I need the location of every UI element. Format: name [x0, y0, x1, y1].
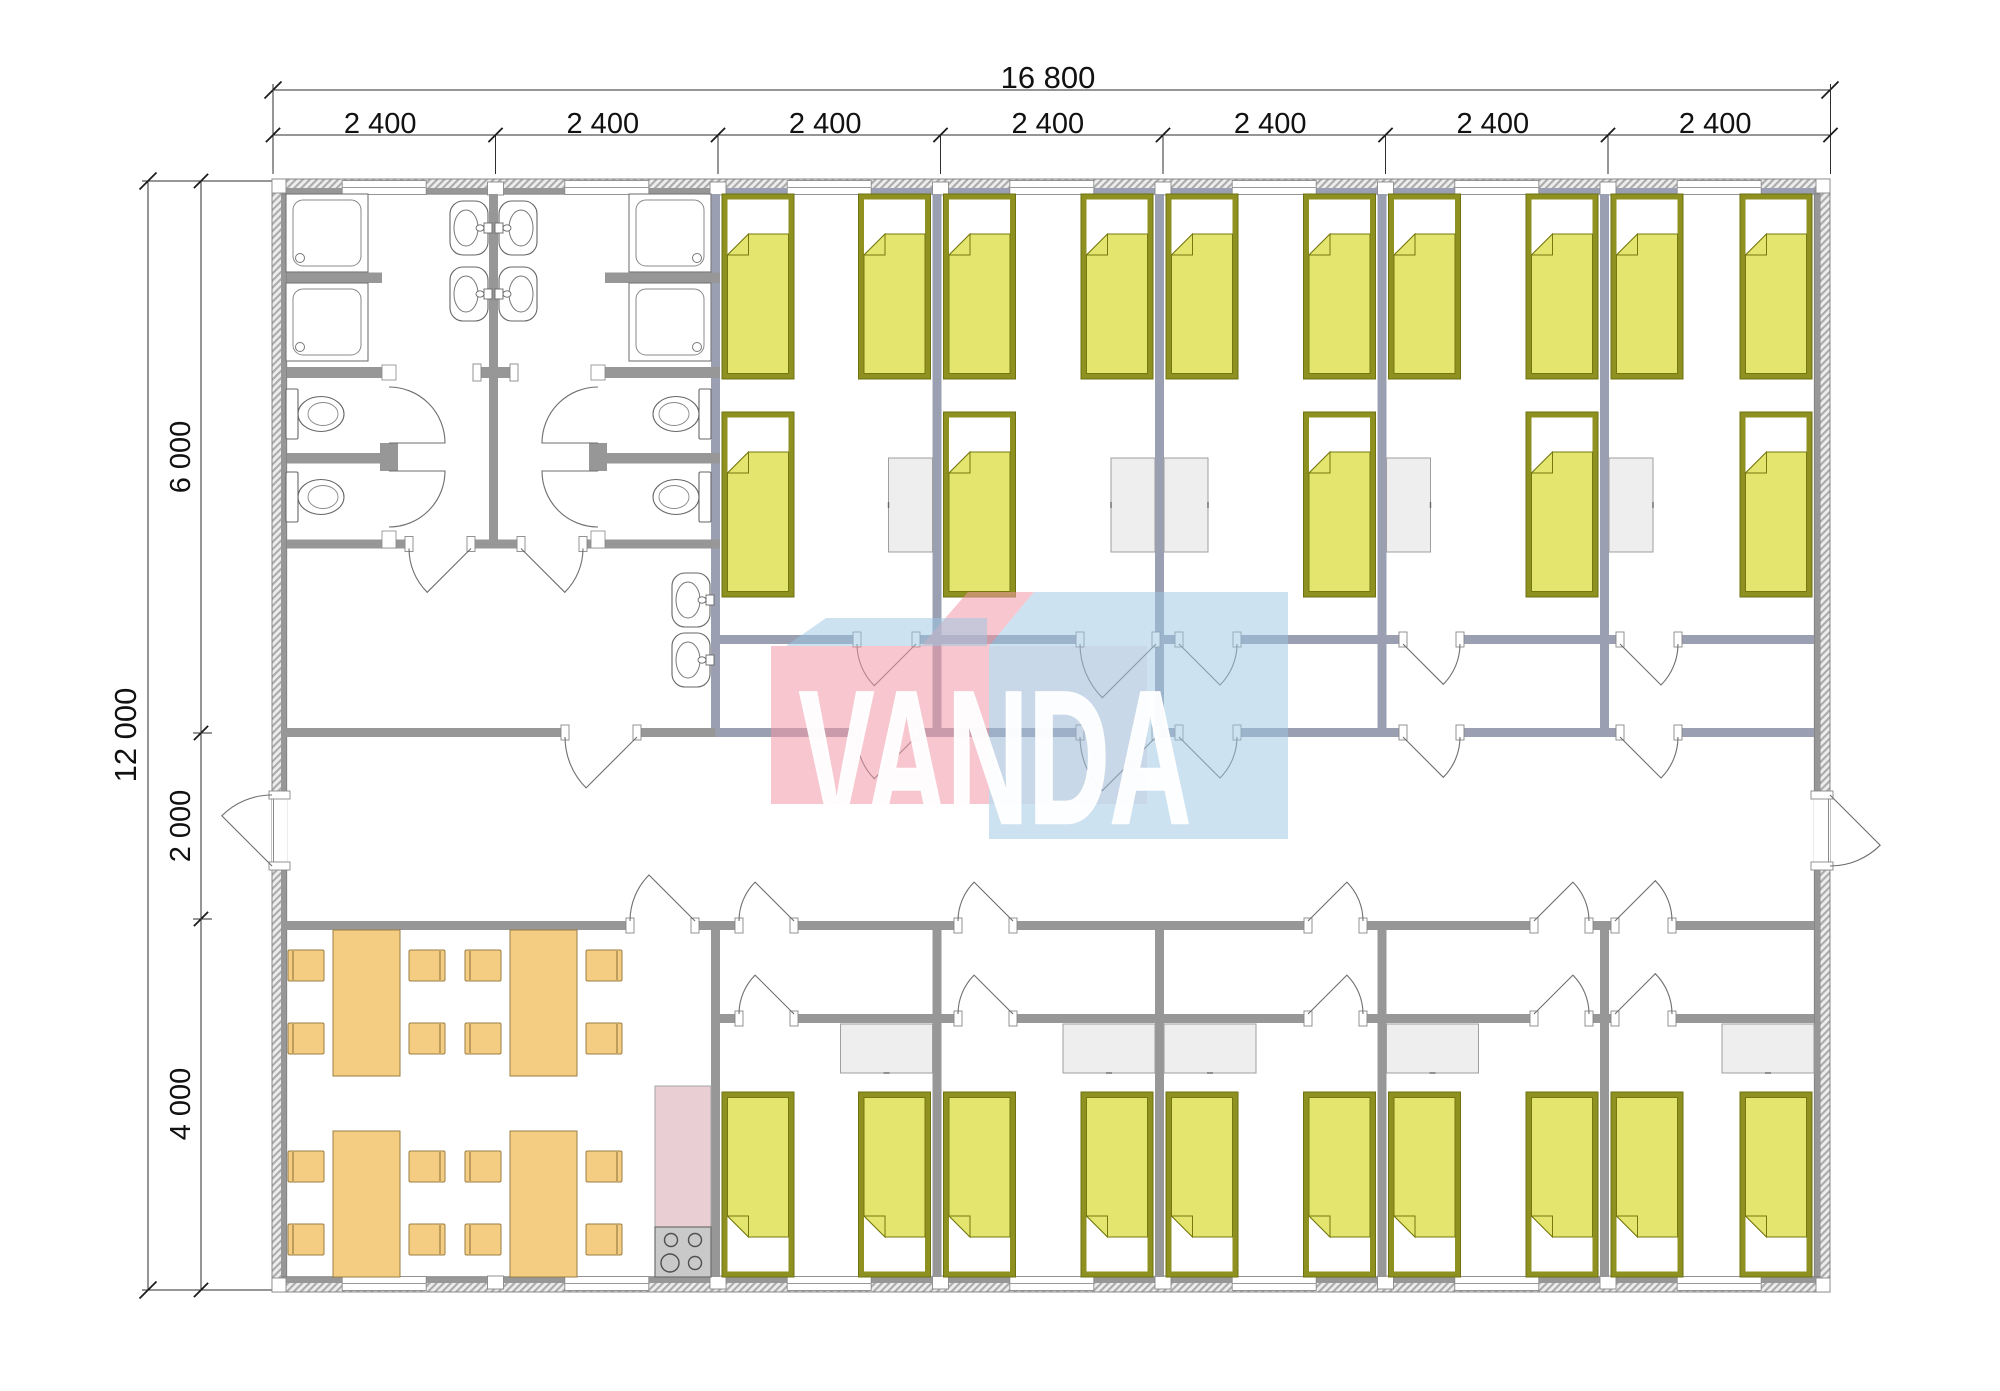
- svg-text:VANDA: VANDA: [799, 652, 1191, 864]
- svg-text:12 000: 12 000: [108, 688, 143, 783]
- svg-text:2 400: 2 400: [1679, 108, 1752, 140]
- svg-text:2 400: 2 400: [1012, 108, 1085, 140]
- svg-text:2 000: 2 000: [165, 790, 197, 863]
- svg-text:4 000: 4 000: [165, 1068, 197, 1141]
- svg-text:16 800: 16 800: [1001, 60, 1096, 95]
- svg-text:2 400: 2 400: [344, 108, 417, 140]
- svg-text:2 400: 2 400: [567, 108, 640, 140]
- svg-text:6 000: 6 000: [165, 421, 197, 494]
- svg-text:2 400: 2 400: [1234, 108, 1307, 140]
- svg-text:2 400: 2 400: [1457, 108, 1530, 140]
- svg-text:2 400: 2 400: [789, 108, 862, 140]
